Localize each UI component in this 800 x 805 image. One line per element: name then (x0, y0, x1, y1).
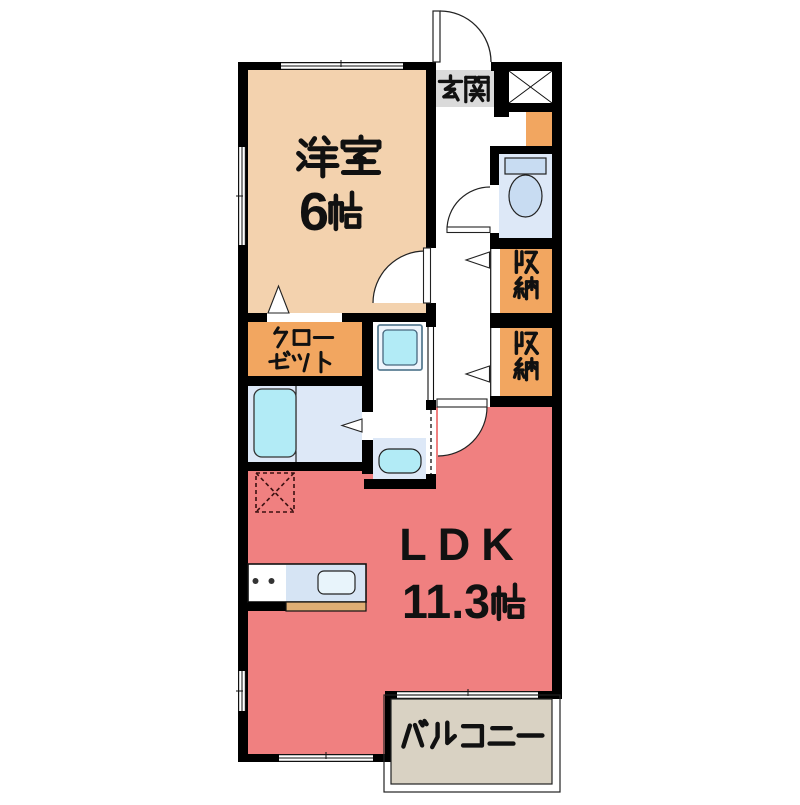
svg-text:LDK: LDK (399, 519, 524, 570)
svg-text:11.3: 11.3 (402, 576, 490, 629)
svg-text:6: 6 (299, 182, 329, 242)
